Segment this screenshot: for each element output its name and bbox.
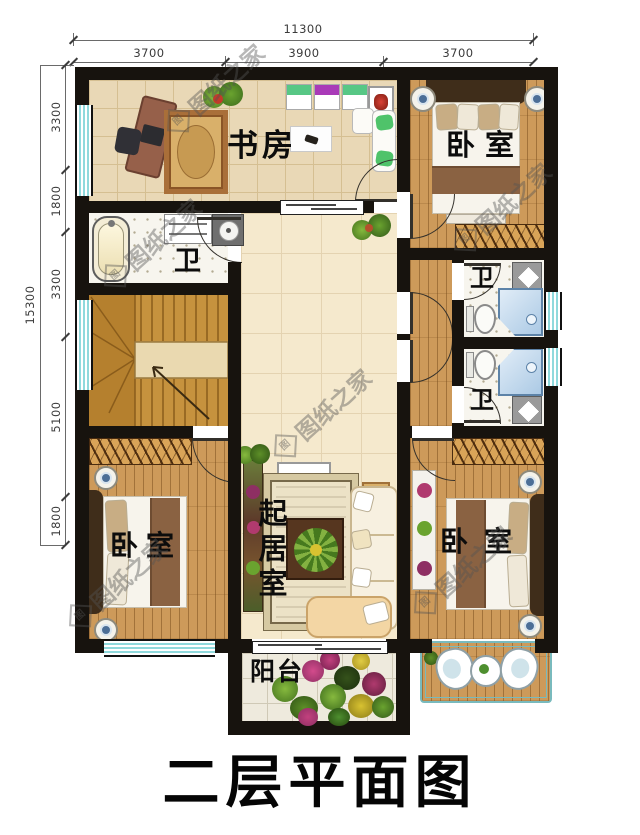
door-leaf	[197, 217, 241, 220]
dim-top-seg1: 3700	[133, 46, 164, 60]
nightstand	[518, 470, 542, 494]
dim-left-total-label: 15300	[23, 285, 37, 324]
room-label-bathroom-left: 卫	[174, 248, 201, 275]
bed-headboard	[426, 80, 526, 104]
room-label-bedroom-bottom-left: 卧室	[110, 532, 182, 560]
pillow	[477, 103, 500, 130]
toilet	[466, 352, 474, 378]
wardrobe-hatch	[89, 438, 192, 465]
room-label-bathroom-right-upper: 卫	[470, 266, 494, 290]
window	[544, 348, 562, 386]
dim-tick	[529, 57, 538, 66]
wall	[452, 248, 464, 263]
dresser-flowers	[412, 470, 436, 590]
study-opening-railing	[280, 200, 364, 215]
wall	[215, 639, 252, 653]
wall	[452, 426, 558, 438]
room-label-living-room: 起居室	[256, 498, 285, 603]
pillow	[435, 103, 459, 130]
dim-left-seg4: 5100	[49, 401, 63, 432]
wall	[75, 67, 558, 80]
desk-chair	[114, 126, 142, 156]
terrace-table	[470, 655, 502, 687]
dim-line	[73, 40, 533, 41]
potted-plant	[236, 444, 270, 468]
pillow	[351, 567, 372, 588]
potted-plant	[352, 214, 392, 246]
pillow	[498, 103, 520, 130]
wall	[397, 248, 558, 260]
wall	[397, 426, 412, 438]
nightstand	[410, 86, 436, 112]
sink	[512, 396, 542, 424]
wall	[397, 80, 410, 192]
dim-left-seg2: 1800	[49, 185, 63, 216]
window	[544, 292, 562, 330]
dim-top-seg2: 3900	[288, 46, 319, 60]
study-rug	[164, 110, 228, 194]
window	[75, 300, 93, 390]
bed-headboard	[530, 494, 544, 616]
wall	[397, 238, 410, 292]
dim-left-seg1: 3300	[49, 101, 63, 132]
wardrobe-hatch	[455, 224, 546, 250]
wall	[89, 201, 280, 213]
dim-left-seg3: 3300	[49, 268, 63, 299]
nightstand	[518, 614, 542, 638]
door-leaf	[464, 420, 500, 423]
bathtub	[92, 216, 130, 282]
dim-left-seg5: 1800	[49, 505, 63, 536]
bed-blanket	[432, 166, 520, 194]
room-label-balcony: 阳台	[250, 659, 304, 684]
wall	[228, 262, 241, 639]
door-leaf	[410, 194, 413, 238]
wall	[89, 639, 104, 653]
dim-tick	[61, 540, 70, 549]
nightstand	[94, 466, 118, 490]
pillow	[350, 528, 372, 550]
side-terrace	[420, 641, 552, 703]
chair-row-seat	[286, 84, 312, 110]
dim-top-seg3: 3700	[442, 46, 473, 60]
chaise-lounge	[306, 596, 392, 638]
wall	[397, 334, 410, 340]
room-label-bathroom-right-lower: 卫	[470, 388, 494, 412]
planter-table	[286, 518, 344, 580]
chair-row-seat	[314, 84, 340, 110]
door-leaf	[410, 340, 413, 382]
wall	[452, 337, 558, 349]
potted-plant	[203, 82, 243, 116]
window	[75, 105, 93, 196]
bed-headboard	[89, 490, 103, 614]
wardrobe-hatch	[452, 438, 546, 465]
room-label-study: 书房	[227, 131, 297, 162]
bed-bench	[446, 214, 506, 224]
door-leaf	[410, 292, 413, 334]
sink	[512, 262, 542, 290]
dim-line	[65, 65, 66, 545]
window	[104, 639, 215, 657]
study-sofa	[352, 108, 374, 134]
staircase	[89, 295, 228, 426]
chair-row-seat	[342, 84, 368, 110]
wall	[397, 382, 410, 639]
dim-ext	[40, 65, 74, 66]
wall	[535, 639, 544, 653]
pillow	[507, 555, 530, 608]
pillow	[456, 103, 479, 130]
vestibule-floor	[410, 248, 452, 426]
wall	[89, 426, 193, 438]
planter-plant	[294, 528, 338, 572]
dim-top-total-label: 11300	[283, 22, 322, 36]
door-leaf	[412, 438, 454, 441]
plan-title: 二层平面图	[163, 755, 478, 812]
wall	[75, 283, 241, 295]
room-label-bedroom-bottom-right: 卧室	[440, 528, 528, 556]
dim-line	[73, 62, 533, 63]
toilet	[466, 306, 474, 332]
room-label-bedroom-top-right: 卧室	[446, 131, 524, 160]
floor-plan-page: { "title": "二层平面图", "watermark": { "logo…	[0, 0, 640, 835]
sliding-door	[252, 641, 388, 654]
dim-line	[40, 65, 41, 545]
